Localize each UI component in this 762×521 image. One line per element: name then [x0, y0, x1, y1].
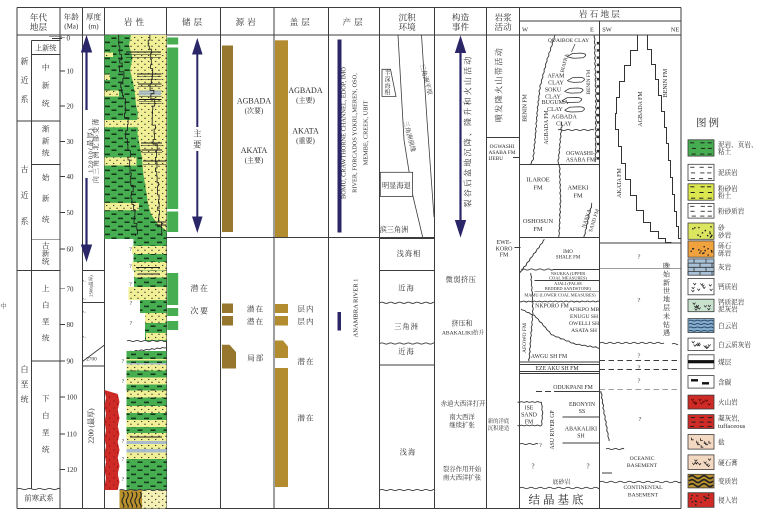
- svg-text:ABAKALIKI抬升: ABAKALIKI抬升: [442, 329, 485, 337]
- svg-text:FM: FM: [500, 253, 509, 259]
- svg-text:?: ?: [122, 439, 125, 445]
- svg-text:变质岩: 变质岩: [718, 477, 738, 486]
- svg-text:?: ?: [638, 378, 641, 385]
- svg-text:AMEKI: AMEKI: [568, 185, 589, 192]
- svg-text:(主要): (主要): [245, 156, 264, 165]
- svg-text:2700: 2700: [86, 356, 97, 362]
- svg-text:微弱挤压: 微弱挤压: [446, 275, 477, 284]
- svg-text:?: ?: [130, 321, 133, 327]
- svg-text:NE: NE: [671, 27, 680, 34]
- svg-text:?: ?: [586, 463, 589, 471]
- svg-text:(Ma): (Ma): [64, 23, 79, 31]
- svg-text:IJEBU: IJEBU: [489, 156, 504, 162]
- svg-text:潜在: 潜在: [247, 316, 264, 326]
- svg-text:ASATA SH: ASATA SH: [571, 328, 597, 334]
- svg-text:BENIN FM: BENIN FM: [522, 94, 528, 122]
- svg-text:南大西洋: 南大西洋: [449, 412, 475, 421]
- svg-text:120: 120: [67, 466, 78, 474]
- svg-text:BASEMENT: BASEMENT: [627, 463, 658, 469]
- svg-text:(次要): (次要): [245, 106, 264, 115]
- svg-text:?: ?: [122, 477, 125, 483]
- svg-text:SH: SH: [577, 433, 585, 439]
- svg-text:ASABA FM: ASABA FM: [566, 158, 595, 164]
- svg-text:泥灰岩: 泥灰岩: [718, 305, 738, 314]
- svg-text:(m): (m): [88, 23, 99, 31]
- svg-text:110: 110: [67, 431, 78, 439]
- svg-text:ASU RIVER GP: ASU RIVER GP: [550, 410, 556, 449]
- svg-text:?: ?: [122, 457, 125, 463]
- svg-text:晚始新世地层未钻遇: 晚始新世地层未钻遇: [663, 261, 671, 337]
- svg-text:钙质岩: 钙质岩: [718, 282, 738, 291]
- svg-text:AFAM: AFAM: [548, 74, 566, 80]
- svg-text:含碳: 含碳: [718, 377, 732, 386]
- svg-text:FM: FM: [533, 226, 543, 233]
- svg-text:OWELLI SH: OWELLI SH: [569, 321, 599, 327]
- svg-text:侵入岩: 侵入岩: [718, 496, 738, 505]
- svg-text:灰岩: 灰岩: [718, 263, 732, 272]
- svg-text:70: 70: [67, 285, 75, 293]
- svg-text:AGBADA FM: AGBADA FM: [638, 91, 644, 127]
- svg-text:NKPORO FM: NKPORO FM: [535, 303, 569, 309]
- svg-text:BOMU, CRAWTHORNE CHANNEL, EDOP: BOMU, CRAWTHORNE CHANNEL, EDOP, IMO: [341, 67, 348, 199]
- svg-text:OCEANIC: OCEANIC: [630, 456, 655, 462]
- svg-text:ENUGU SH: ENUGU SH: [570, 314, 598, 320]
- svg-text:喷发隆火山带活动: 喷发隆火山带活动: [494, 47, 504, 122]
- svg-text:BUGUMA: BUGUMA: [542, 100, 569, 106]
- svg-text:E: E: [590, 27, 594, 34]
- svg-text:60: 60: [67, 246, 75, 254]
- svg-text:浅海: 浅海: [400, 448, 416, 457]
- svg-text:CLAY: CLAY: [548, 81, 564, 87]
- svg-text:SHALE FM: SHALE FM: [556, 256, 581, 261]
- svg-text:(重要): (重要): [296, 136, 315, 145]
- svg-text:粉砂质岩: 粉砂质岩: [718, 206, 745, 215]
- svg-text:AWGU SH FM: AWGU SH FM: [531, 354, 567, 360]
- svg-text:新近系: 新近系: [21, 56, 29, 104]
- svg-text:粉土: 粉土: [718, 191, 732, 200]
- svg-text:AKATA FM: AKATA FM: [617, 167, 623, 197]
- svg-text:?: ?: [638, 254, 641, 261]
- svg-text:粉砂岩: 粉砂岩: [718, 184, 738, 193]
- svg-text:90: 90: [67, 358, 75, 366]
- svg-text:AFOWO FM: AFOWO FM: [522, 323, 528, 353]
- svg-text:白云质灰岩: 白云质灰岩: [718, 340, 751, 349]
- svg-text:FM: FM: [533, 185, 543, 192]
- svg-text:环境: 环境: [398, 21, 416, 32]
- svg-text:FM: FM: [573, 193, 583, 200]
- svg-text:tuffaceous: tuffaceous: [718, 423, 746, 430]
- svg-text:80: 80: [67, 321, 75, 329]
- svg-text:钙质泥岩: 钙质泥岩: [718, 297, 745, 306]
- svg-text:ISE: ISE: [525, 406, 534, 412]
- svg-text:ABAKALIKI: ABAKALIKI: [565, 427, 597, 433]
- svg-text:泥岩、页岩、: 泥岩、页岩、: [718, 140, 758, 149]
- svg-text:10: 10: [67, 67, 75, 75]
- svg-text:?: ?: [122, 359, 125, 365]
- svg-text:?: ?: [130, 301, 133, 307]
- svg-text:白垩统: 白垩统: [21, 364, 29, 404]
- svg-text:砂岩: 砂岩: [718, 230, 732, 239]
- svg-text:地层: 地层: [30, 21, 48, 32]
- svg-text:火山岩: 火山岩: [718, 398, 738, 407]
- svg-text:事件: 事件: [452, 21, 470, 32]
- svg-text:源岩: 源岩: [236, 16, 259, 27]
- svg-text:QUAIBOE CLAY: QUAIBOE CLAY: [548, 38, 589, 44]
- svg-text:近海: 近海: [398, 284, 414, 293]
- svg-text:构造: 构造: [452, 12, 470, 23]
- svg-text:?: ?: [129, 264, 132, 270]
- svg-text:岩性: 岩性: [124, 16, 147, 27]
- svg-text:AGBADA: AGBADA: [288, 86, 322, 95]
- svg-text:厚度: 厚度: [86, 12, 102, 22]
- svg-text:三角洲: 三角洲: [394, 322, 419, 331]
- svg-text:MEMBE, CREEK, UBIT: MEMBE, CREEK, UBIT: [363, 100, 370, 165]
- svg-text:次要: 次要: [191, 306, 210, 316]
- svg-text:潜在: 潜在: [297, 413, 314, 423]
- svg-text:EBONYIN: EBONYIN: [569, 402, 596, 408]
- svg-text:COAL MEASURES): COAL MEASURES): [549, 275, 587, 280]
- svg-text:CLAY: CLAY: [556, 122, 572, 128]
- svg-text:继续扩张: 继续扩张: [449, 420, 475, 429]
- svg-text:图例: 图例: [696, 116, 721, 129]
- svg-text:FM: FM: [525, 420, 533, 426]
- svg-text:100: 100: [67, 393, 78, 401]
- svg-text:?: ?: [129, 247, 132, 253]
- svg-text:?: ?: [539, 443, 542, 449]
- svg-text:活动: 活动: [494, 21, 512, 32]
- svg-text:始新统: 始新统: [42, 172, 50, 224]
- svg-text:岩浆: 岩浆: [494, 12, 512, 23]
- svg-text:AGBADA: AGBADA: [551, 115, 577, 121]
- svg-text:?: ?: [638, 365, 641, 372]
- svg-text:BEDDED SANDSTONE): BEDDED SANDSTONE): [545, 286, 592, 291]
- svg-text:层内: 层内: [297, 316, 314, 326]
- svg-text:凝灰岩,: 凝灰岩,: [718, 413, 740, 422]
- svg-text:(主要): (主要): [296, 96, 315, 105]
- svg-text:年代: 年代: [30, 12, 48, 23]
- svg-text:潜在: 潜在: [297, 356, 314, 366]
- svg-text:SW: SW: [602, 27, 613, 34]
- svg-text:?: ?: [638, 297, 641, 304]
- svg-text:砂: 砂: [718, 223, 725, 232]
- svg-text:中新统: 中新统: [42, 62, 50, 108]
- svg-text:AKATA: AKATA: [241, 146, 268, 155]
- svg-text:年龄: 年龄: [64, 12, 80, 22]
- svg-text:砾石: 砾石: [718, 241, 732, 250]
- svg-text:近海: 近海: [398, 347, 414, 356]
- svg-text:岩石地层: 岩石地层: [579, 8, 622, 19]
- svg-text:2500(最厚): 2500(最厚): [88, 275, 95, 297]
- svg-text:层内: 层内: [297, 304, 314, 314]
- svg-text:0: 0: [67, 34, 71, 42]
- svg-text:渐新统: 渐新统: [42, 125, 50, 158]
- svg-text:ILAROE: ILAROE: [526, 177, 550, 184]
- svg-text:南大西洋扩张: 南大西洋扩张: [443, 473, 482, 482]
- svg-text:浅海相: 浅海相: [397, 249, 422, 258]
- svg-text:沉积建造: 沉积建造: [488, 424, 510, 432]
- svg-text:2200 (最厚): 2200 (最厚): [87, 408, 96, 444]
- svg-text:裂谷后盆地沉降、隆升和火山活动: 裂谷后盆地沉降、隆升和火山活动: [463, 54, 473, 207]
- svg-text:半深海相: 半深海相: [384, 69, 390, 97]
- svg-text:BASEMENT: BASEMENT: [628, 492, 659, 498]
- svg-text:ODUKPANI FM: ODUKPANI FM: [553, 385, 593, 391]
- svg-text:ANAMBRA RIVER 1: ANAMBRA RIVER 1: [353, 279, 360, 338]
- svg-text:上新统: 上新统: [35, 43, 57, 52]
- svg-text:?: ?: [639, 416, 642, 423]
- svg-text:?: ?: [531, 463, 534, 471]
- svg-text:CLAY: CLAY: [547, 107, 563, 113]
- svg-text:裂谷作用开始: 裂谷作用开始: [443, 464, 482, 473]
- svg-text:AGBADA: AGBADA: [237, 97, 271, 106]
- svg-text:SS: SS: [579, 409, 585, 415]
- svg-text:AGBADA FM: AGBADA FM: [544, 110, 550, 144]
- svg-text:?: ?: [122, 379, 125, 385]
- svg-text:硬石膏: 硬石膏: [718, 458, 738, 467]
- svg-text:IMO: IMO: [563, 250, 573, 255]
- svg-text:古近系: 古近系: [21, 164, 29, 226]
- svg-text:20: 20: [67, 102, 75, 110]
- svg-text:新的洋底: 新的洋底: [488, 417, 510, 425]
- svg-text:BENIN FM: BENIN FM: [663, 68, 669, 97]
- svg-text:潜在: 潜在: [247, 304, 264, 314]
- svg-text:SAND: SAND: [521, 413, 537, 419]
- svg-text:滨三角洲: 滨三角洲: [380, 225, 409, 234]
- svg-text:向三角洲北部变薄: 向三角洲北部变薄: [91, 117, 100, 183]
- svg-text:砾岩: 砾岩: [718, 248, 732, 257]
- svg-text:盐: 盐: [718, 437, 725, 446]
- svg-text:50: 50: [67, 209, 75, 217]
- svg-text:储层: 储层: [182, 16, 205, 27]
- svg-text:AFIKPO MB: AFIKPO MB: [569, 307, 600, 313]
- svg-text:MAMU (LOWER COAL MEASURES): MAMU (LOWER COAL MEASURES): [524, 292, 596, 297]
- svg-text:前寒武系: 前寒武系: [24, 494, 54, 503]
- svg-text:底砂岩: 底砂岩: [552, 478, 570, 486]
- svg-text:挤压和: 挤压和: [452, 319, 473, 328]
- svg-text:结晶基底: 结晶基底: [529, 493, 587, 507]
- svg-text:赤道大西洋打开: 赤道大西洋打开: [441, 399, 486, 408]
- svg-text:煤层: 煤层: [718, 357, 732, 366]
- svg-text:明显海退: 明显海退: [382, 181, 411, 190]
- svg-text:古新统: 古新统: [42, 240, 50, 266]
- svg-text:盖层: 盖层: [290, 16, 313, 27]
- svg-text:RIVER, FORCADOS YOKRL,MEREN, O: RIVER, FORCADOS YOKRL,MEREN, OSO,: [352, 73, 359, 193]
- svg-text:KORO: KORO: [495, 246, 513, 252]
- svg-text:泥质岩: 泥质岩: [718, 168, 738, 177]
- svg-text:中: 中: [0, 301, 7, 310]
- svg-text:SOKU: SOKU: [545, 88, 562, 94]
- svg-text:EWE-: EWE-: [497, 240, 512, 246]
- svg-text:潜在: 潜在: [191, 283, 210, 293]
- svg-text:W: W: [522, 27, 529, 34]
- svg-text:AKATA: AKATA: [292, 127, 319, 136]
- svg-text:30: 30: [67, 138, 75, 146]
- svg-text:40: 40: [67, 173, 75, 181]
- svg-text:OSHOSUN: OSHOSUN: [523, 218, 554, 225]
- svg-text:局部: 局部: [247, 353, 264, 363]
- svg-text:CONTINENTAL: CONTINENTAL: [623, 485, 663, 491]
- svg-text:?: ?: [129, 282, 132, 288]
- svg-text:沉积: 沉积: [398, 12, 416, 23]
- svg-text:产层: 产层: [342, 16, 365, 27]
- svg-text:?: ?: [638, 353, 641, 360]
- svg-text:BENIN FM: BENIN FM: [586, 69, 592, 94]
- svg-text:白云岩: 白云岩: [718, 321, 738, 330]
- svg-text:粘土: 粘土: [718, 147, 732, 156]
- svg-text:OGWASHI-: OGWASHI-: [566, 151, 595, 157]
